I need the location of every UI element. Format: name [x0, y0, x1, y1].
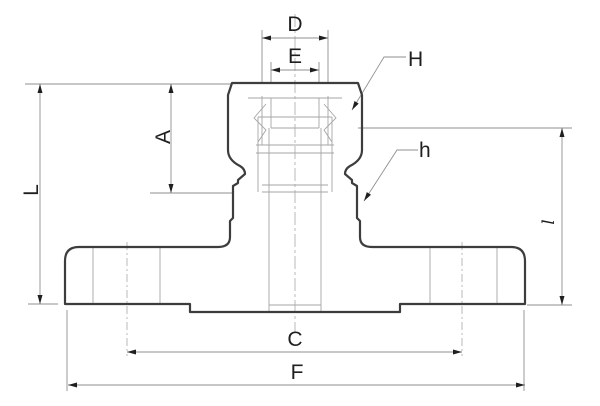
- leader-line-H: [352, 57, 406, 110]
- drawing-canvas: D E H h A L l C F: [0, 0, 600, 406]
- dim-label-h: h: [419, 139, 431, 162]
- technical-drawing: D E H h A L l C F: [0, 0, 600, 406]
- dimension-labels: D E H h A L l C F: [20, 13, 559, 384]
- dim-label-l: l: [539, 219, 559, 224]
- dim-label-A: A: [152, 130, 175, 144]
- dim-label-L: L: [20, 184, 43, 196]
- dim-label-F: F: [291, 361, 304, 384]
- dim-label-D: D: [287, 13, 302, 36]
- dim-label-E: E: [288, 45, 302, 68]
- dim-label-H: H: [408, 48, 423, 71]
- dim-label-C: C: [287, 328, 302, 351]
- leader-line-h: [364, 150, 418, 201]
